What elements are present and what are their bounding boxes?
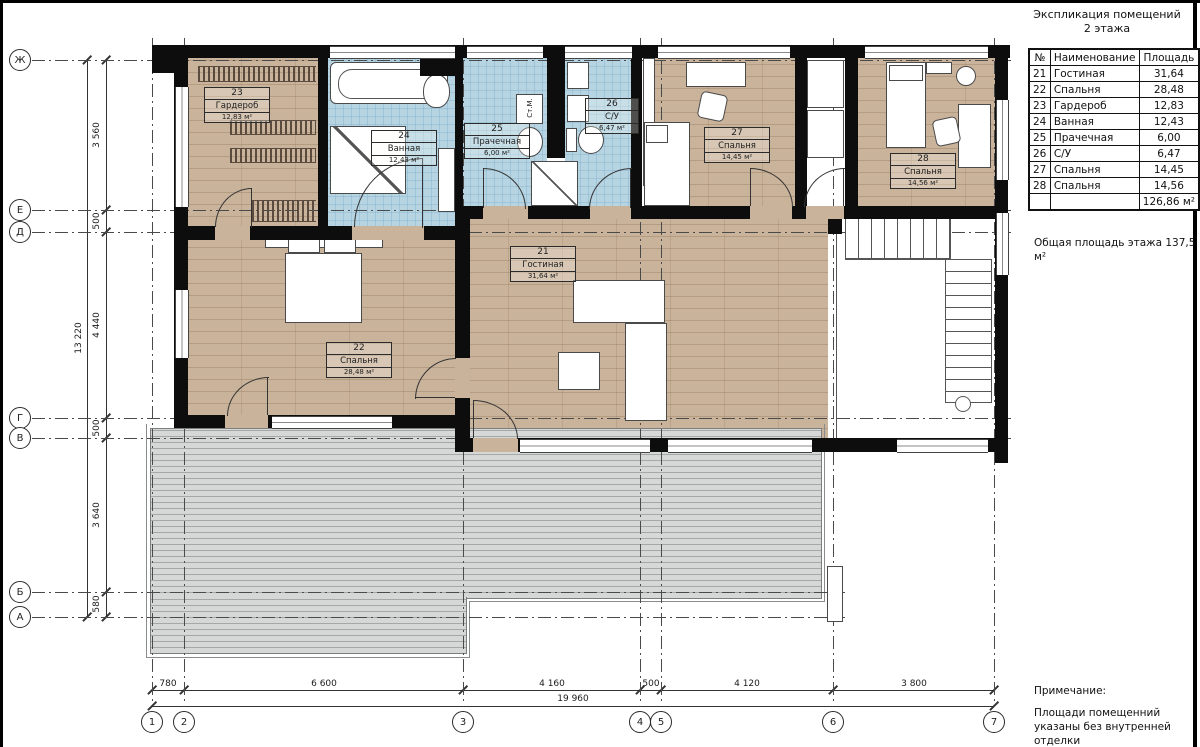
col-header-area: Площадь: [1139, 49, 1199, 66]
door-opening: [225, 415, 268, 428]
terrace-outline: [146, 424, 147, 657]
wall-21-22: [455, 219, 470, 438]
axis-bubble-d: Д: [9, 221, 31, 243]
door-leaf: [267, 377, 268, 415]
axis-bubble-1: 1: [141, 711, 163, 733]
window: [175, 290, 189, 358]
wall-hall-top: [455, 206, 1008, 219]
window: [272, 416, 392, 429]
door-leaf: [251, 188, 252, 228]
stair-flight-upper: [845, 217, 951, 259]
sofa-vertical: [625, 323, 667, 421]
table-total-area: 126,86 м²: [1139, 194, 1199, 211]
door-opening: [473, 438, 518, 452]
floor-plan-sheet: Ст.М.: [0, 0, 1200, 747]
door-opening: [806, 206, 844, 219]
room-label-28: 28 Спальня 14,56 м²: [890, 153, 956, 189]
axis-bubble-v: В: [9, 427, 31, 449]
door-opening: [352, 226, 424, 240]
table-header-row: № Наименование Площадь: [1029, 49, 1199, 66]
sink: [567, 62, 589, 89]
desk: [686, 62, 746, 87]
dim-left-2: 500: [92, 191, 102, 251]
spec-table-title: Экспликация помещений 2 этажа: [1022, 8, 1192, 36]
room-label-22: 22 Спальня 28,48 м²: [326, 342, 392, 378]
stair-newel: [955, 396, 971, 412]
dim-bottom-3: 4 160: [512, 679, 592, 689]
window: [330, 46, 455, 59]
table-row: 25Прачечная6,00: [1029, 130, 1199, 146]
room-label-24: 24 Ванная 12,43 м²: [371, 130, 437, 166]
note-title: Примечание:: [1034, 684, 1194, 698]
dim-bottom-6: 3 800: [874, 679, 954, 689]
closet: [807, 60, 844, 108]
wardrobe-rack: [230, 148, 316, 163]
door-opening: [455, 358, 470, 398]
axis-bubble-5: 5: [650, 711, 672, 733]
wall-23-24: [318, 58, 328, 226]
dim-left-3: 4 440: [92, 295, 102, 355]
stool: [956, 66, 976, 86]
door-opening: [215, 226, 250, 240]
pillow: [324, 238, 356, 253]
terrace-outline: [469, 601, 825, 602]
axis-bubble-4: 4: [629, 711, 651, 733]
wall-niche-right: [845, 58, 858, 206]
room-label-23: 23 Гардероб 12,83 м²: [204, 87, 270, 123]
sofa-horizontal: [573, 280, 665, 323]
table-row: 27Спальня14,45: [1029, 162, 1199, 178]
dimension-line-bottom-total: [152, 706, 994, 707]
stair-flight-right: [945, 259, 992, 403]
terrace-outline: [146, 657, 470, 658]
col-header-name: Наименование: [1050, 49, 1139, 66]
dim-bottom-4: 500: [611, 679, 691, 689]
pillow: [889, 65, 923, 81]
shower: [531, 161, 578, 206]
washing-machine: Ст.М.: [516, 94, 543, 124]
table-total-row: 126,86 м²: [1029, 194, 1199, 211]
wall-niche-left: [795, 58, 807, 206]
table-row: 21Гостиная31,64: [1029, 66, 1199, 82]
wall-chimney: [420, 58, 462, 76]
window: [175, 87, 189, 207]
room-schedule-table: № Наименование Площадь 21Гостиная31,64 2…: [1028, 48, 1200, 211]
wall-pocket-25-26: [547, 58, 565, 158]
axis-bubble-b: Б: [9, 581, 31, 603]
table-row: 22Спальня28,48: [1029, 82, 1199, 98]
sheet-border-top: [0, 0, 1200, 3]
coffee-table: [558, 352, 600, 390]
terrace-deck: [150, 428, 822, 599]
wall-24-25: [455, 58, 463, 210]
wall-26-27: [631, 58, 642, 210]
col-header-num: №: [1029, 49, 1050, 66]
table-row: 26С/У6,47: [1029, 146, 1199, 162]
door-leaf: [483, 168, 484, 208]
pillow: [646, 125, 668, 143]
axis-bubble-7: 7: [983, 711, 1005, 733]
window: [565, 46, 632, 59]
terrace-deck-lower: [150, 597, 467, 654]
axis-bubble-e: Е: [9, 199, 31, 221]
terrace-outline: [469, 601, 470, 657]
axis-bubble-zh: Ж: [9, 49, 31, 71]
toilet-bowl: [423, 74, 450, 108]
dim-bottom-total: 19 960: [533, 694, 613, 704]
toilet-tank: [566, 128, 577, 152]
axis-bubble-g: Г: [9, 407, 31, 429]
vanity: [438, 148, 455, 212]
table-row: 23Гардероб12,83: [1029, 98, 1199, 114]
door-leaf: [473, 400, 474, 438]
table-row: 24Ванная12,43: [1029, 114, 1199, 130]
window: [467, 46, 543, 59]
sheet-border-left: [0, 0, 3, 747]
window: [996, 100, 1009, 180]
axis-bubble-3: 3: [452, 711, 474, 733]
bed-double: [285, 253, 362, 323]
wardrobe-rack: [198, 66, 316, 82]
window-sliding: [520, 439, 650, 453]
dim-left-6: 580: [92, 574, 102, 634]
table-row: 28Спальня14,56: [1029, 178, 1199, 194]
room-label-21: 21 Гостиная 31,64 м²: [510, 246, 576, 282]
dim-left-1: 3 560: [92, 105, 102, 165]
axis-line-b: [32, 592, 845, 593]
room-label-25: 25 Прачечная 6,00 м²: [464, 123, 530, 159]
room-label-26: 26 С/У 6,47 м²: [585, 98, 639, 134]
chair: [696, 90, 728, 122]
dimension-line-left: [106, 60, 107, 617]
axis-bubble-a: А: [9, 606, 31, 628]
dim-bottom-2: 6 600: [284, 679, 364, 689]
axis-line-a: [32, 617, 845, 618]
axis-bubble-2: 2: [173, 711, 195, 733]
door-leaf: [843, 168, 844, 206]
dim-left-4: 500: [92, 398, 102, 458]
window: [996, 213, 1009, 275]
door-swing: [804, 168, 845, 207]
dim-left-total: 13 220: [74, 308, 84, 368]
shelf: [926, 62, 952, 74]
door-opening: [750, 206, 792, 219]
dimension-line-left-total: [87, 60, 88, 617]
wardrobe-rack: [252, 200, 316, 222]
dim-bottom-1: 780: [128, 679, 208, 689]
window: [865, 46, 988, 59]
floor-total-area: Общая площадь этажа 137,5 м²: [1034, 236, 1200, 264]
axis-bubble-6: 6: [822, 711, 844, 733]
dimension-line-bottom: [152, 690, 994, 691]
chair: [931, 116, 961, 148]
axis-line-1: [152, 38, 153, 705]
pillow: [288, 238, 320, 253]
door-leaf: [415, 397, 455, 398]
dim-left-5: 3 640: [92, 485, 102, 545]
window-sliding: [668, 439, 812, 453]
closet: [807, 110, 844, 158]
stair-partition-line: [836, 234, 837, 438]
room-label-27: 27 Спальня 14,45 м²: [704, 127, 770, 163]
desk: [958, 104, 991, 168]
door-leaf: [630, 168, 631, 208]
door-leaf: [422, 158, 423, 228]
note-body: Площади помещенний указаны без внутренне…: [1034, 706, 1194, 747]
stair-rail: [845, 259, 992, 260]
dim-bottom-5: 4 120: [707, 679, 787, 689]
door-leaf: [750, 168, 751, 206]
pillar: [827, 566, 843, 622]
window: [658, 46, 790, 59]
window-sliding: [897, 439, 988, 453]
